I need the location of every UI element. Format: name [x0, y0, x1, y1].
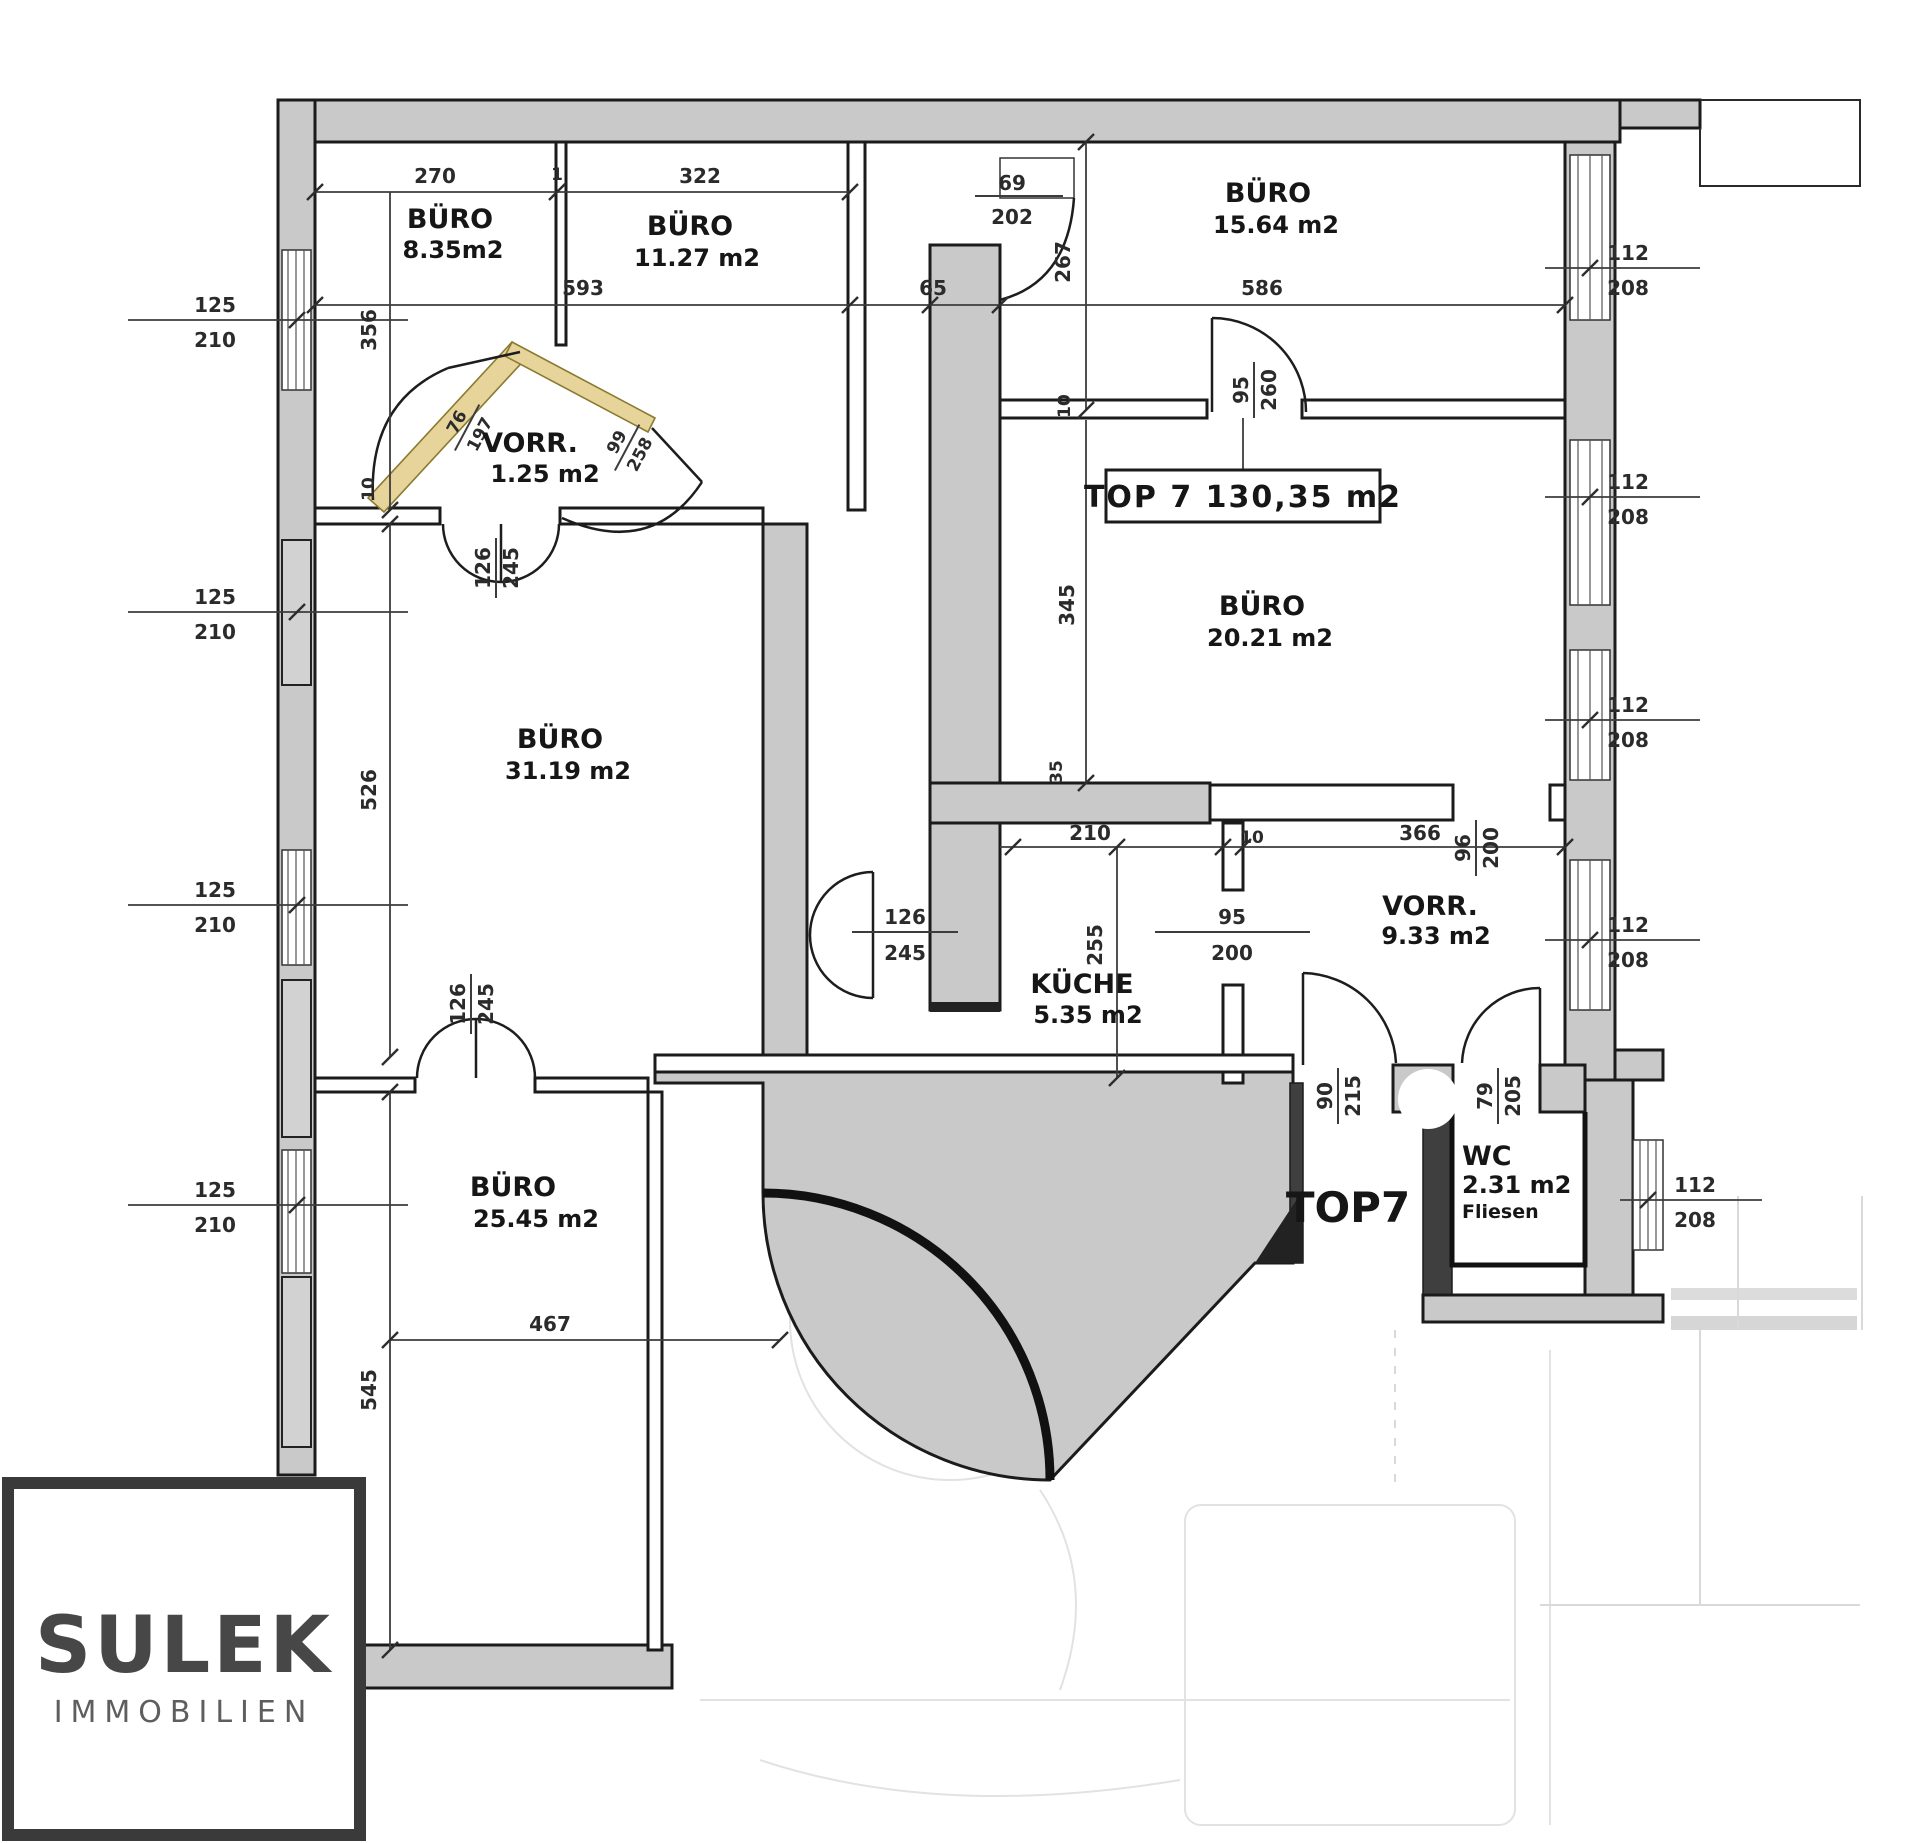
- door-215: 215: [1341, 1075, 1365, 1117]
- win-208-1: 208: [1607, 276, 1649, 300]
- window-right-1: [1570, 155, 1610, 320]
- unit-box-text: TOP 7 130,35 m2: [1084, 480, 1402, 515]
- dim-10b: 10: [359, 477, 379, 501]
- door-126b: 126: [471, 547, 495, 589]
- win-208-3: 208: [1607, 728, 1649, 752]
- dim-10c: 10: [1055, 394, 1075, 418]
- win-125-2: 125: [194, 585, 236, 609]
- door-label-126-245-vorr: 126 245: [471, 538, 523, 598]
- accent-wall-b: [505, 342, 655, 432]
- window-label-left-4: 125 210: [194, 1178, 236, 1237]
- wc-east-wall: [1585, 1080, 1633, 1302]
- room-area-wc: 2.31 m2: [1462, 1171, 1571, 1199]
- room-name-kueche: KÜCHE: [1030, 967, 1133, 1000]
- logo-sulek: SULEK IMMOBILIEN: [8, 1483, 360, 1835]
- parapet-step: [1620, 100, 1700, 128]
- stairwell-mass: [655, 1057, 1293, 1480]
- corridor-south-wall: [655, 1055, 1293, 1072]
- door-left-3: [282, 1277, 311, 1447]
- win-125-1: 125: [194, 293, 236, 317]
- logo-text-main: SULEK: [35, 1601, 333, 1691]
- central-wall-cap: [930, 1002, 1000, 1012]
- dim-467: 467: [529, 1312, 571, 1336]
- wc-bay-bottom-wall: [1423, 1295, 1663, 1322]
- door-245b: 245: [499, 547, 523, 589]
- window-left-3: [282, 1150, 311, 1273]
- window-label-left-2: 125 210: [194, 585, 236, 644]
- top-wall: [278, 100, 1620, 142]
- door-left-2: [282, 980, 311, 1137]
- dim-1: 1: [551, 165, 563, 185]
- unit-label-box: TOP 7 130,35 m2: [1084, 470, 1402, 522]
- door-79-205: [1462, 988, 1540, 1065]
- buero1564-south-wall-a: [1000, 400, 1207, 418]
- door-label-126-245-corridor: 126 245: [884, 905, 926, 965]
- win-125-4: 125: [194, 1178, 236, 1202]
- floor-plan-svg: 270 1 322 593 65 586 356 526 545 267 345…: [0, 0, 1920, 1843]
- door-90-215: [1303, 973, 1396, 1065]
- room-area-buero3119: 31.19 m2: [505, 757, 631, 785]
- door-90: 90: [1313, 1082, 1337, 1110]
- dim-526: 526: [357, 769, 381, 811]
- door-label-126-245-buero2545: 126 245: [446, 974, 498, 1034]
- door-200b: 200: [1211, 941, 1253, 965]
- double-door-buero2545: [417, 1019, 535, 1078]
- room-area-vorr125: 1.25 m2: [490, 460, 599, 488]
- room-name-buero2021: BÜRO: [1219, 589, 1305, 622]
- door-label-95-260: 95 260: [1229, 362, 1281, 418]
- win-208-5: 208: [1674, 1208, 1716, 1232]
- dim-322: 322: [679, 164, 721, 188]
- room-area-buero1127: 11.27 m2: [634, 244, 760, 272]
- central-wall: [930, 245, 1000, 1010]
- room-name-buero1564: BÜRO: [1225, 176, 1311, 209]
- buero1564-south-wall-b: [1302, 400, 1565, 418]
- south-wall-segment-b: [1540, 1065, 1585, 1112]
- door-245a: 245: [884, 941, 926, 965]
- door-label-96-200: 96 200: [1451, 820, 1503, 876]
- door-202: 202: [991, 205, 1033, 229]
- room-note-wc: Fliesen: [1462, 1201, 1539, 1223]
- dim-267: 267: [1051, 241, 1075, 283]
- door-99: 99: [603, 427, 632, 457]
- door-label-90-215: 90 215: [1313, 1068, 1365, 1124]
- win-210-4: 210: [194, 1213, 236, 1237]
- vorr-south-wall-a: [315, 508, 440, 524]
- buero2021-south-wall-thin: [1210, 785, 1453, 820]
- buero2545-east-wall: [648, 1092, 662, 1650]
- door-205: 205: [1501, 1075, 1525, 1117]
- win-208-4: 208: [1607, 948, 1649, 972]
- room-name-buero3119: BÜRO: [517, 722, 603, 755]
- logo-text-sub: IMMOBILIEN: [54, 1695, 315, 1730]
- window-label-left-3: 125 210: [194, 878, 236, 937]
- window-label-wc: 112 208: [1674, 1173, 1716, 1232]
- room-name-buero2545: BÜRO: [470, 1170, 556, 1203]
- dim-593: 593: [562, 276, 604, 300]
- wc-bay-top-wall: [1615, 1050, 1663, 1080]
- dim-366: 366: [1399, 821, 1441, 845]
- scan-white-spot: [1398, 1069, 1458, 1129]
- dim-586: 586: [1241, 276, 1283, 300]
- door-label-95-200: 95 200: [1211, 905, 1253, 965]
- dim-545: 545: [357, 1369, 381, 1411]
- win-112-5: 112: [1674, 1173, 1716, 1197]
- dim-356: 356: [357, 309, 381, 351]
- door-79: 79: [1473, 1082, 1497, 1110]
- dim-65: 65: [919, 276, 947, 300]
- window-right-4: [1570, 860, 1610, 1010]
- win-112-2: 112: [1607, 470, 1649, 494]
- door-96: 96: [1451, 834, 1475, 862]
- window-left-2: [282, 850, 311, 965]
- win-125-3: 125: [194, 878, 236, 902]
- room-name-buero835: BÜRO: [407, 202, 493, 235]
- dim-210: 210: [1069, 821, 1111, 845]
- room-name-wc: WC: [1462, 1141, 1512, 1172]
- dim-270: 270: [414, 164, 456, 188]
- room-area-buero2545: 25.45 m2: [473, 1205, 599, 1233]
- outer-walls: [278, 100, 1860, 1688]
- entrance-top7-label: TOP7: [1286, 1183, 1410, 1232]
- room-name-vorr933: VORR.: [1382, 891, 1478, 922]
- room-name-vorr125: VORR.: [482, 428, 578, 459]
- door-95b: 95: [1218, 905, 1246, 929]
- window-label-left-1: 125 210: [194, 293, 236, 352]
- buero2021-south-wall-stub: [1550, 785, 1565, 820]
- door-245c: 245: [474, 983, 498, 1025]
- door-95a: 95: [1229, 376, 1253, 404]
- dim-10a: 10: [1240, 828, 1264, 848]
- door-126a: 126: [884, 905, 926, 929]
- buero1127-east-wall: [848, 142, 865, 510]
- dim-255: 255: [1083, 924, 1107, 966]
- dim-345: 345: [1055, 584, 1079, 626]
- corridor-west-wall: [763, 524, 807, 1057]
- room-area-buero2021: 20.21 m2: [1207, 624, 1333, 652]
- window-right-2: [1570, 440, 1610, 605]
- dim-35: 35: [1047, 760, 1067, 784]
- win-210-1: 210: [194, 328, 236, 352]
- win-210-2: 210: [194, 620, 236, 644]
- win-210-3: 210: [194, 913, 236, 937]
- win-112-4: 112: [1607, 913, 1649, 937]
- room-area-buero835: 8.35m2: [403, 236, 504, 264]
- door-200c: 200: [1479, 827, 1503, 869]
- buero2545-north-wall-a: [315, 1078, 415, 1092]
- door-126c: 126: [446, 983, 470, 1025]
- neighbor-outline: [1700, 100, 1860, 186]
- room-area-kueche: 5.35 m2: [1033, 1001, 1142, 1029]
- win-208-2: 208: [1607, 505, 1649, 529]
- floor-plan-page: 270 1 322 593 65 586 356 526 545 267 345…: [0, 0, 1920, 1843]
- window-right-3: [1570, 650, 1610, 780]
- room-area-buero1564: 15.64 m2: [1213, 211, 1339, 239]
- window-wc: [1633, 1140, 1663, 1250]
- buero2545-north-wall-b: [535, 1078, 648, 1092]
- double-door-corridor: [810, 872, 873, 998]
- door-label-79-205: 79 205: [1473, 1068, 1525, 1124]
- buero2021-south-wall: [930, 783, 1210, 823]
- door-260: 260: [1257, 369, 1281, 411]
- win-112-1: 112: [1607, 241, 1649, 265]
- door-69: 69: [998, 171, 1026, 195]
- room-name-buero1127: BÜRO: [647, 209, 733, 242]
- room-area-vorr933: 9.33 m2: [1381, 922, 1490, 950]
- win-112-3: 112: [1607, 693, 1649, 717]
